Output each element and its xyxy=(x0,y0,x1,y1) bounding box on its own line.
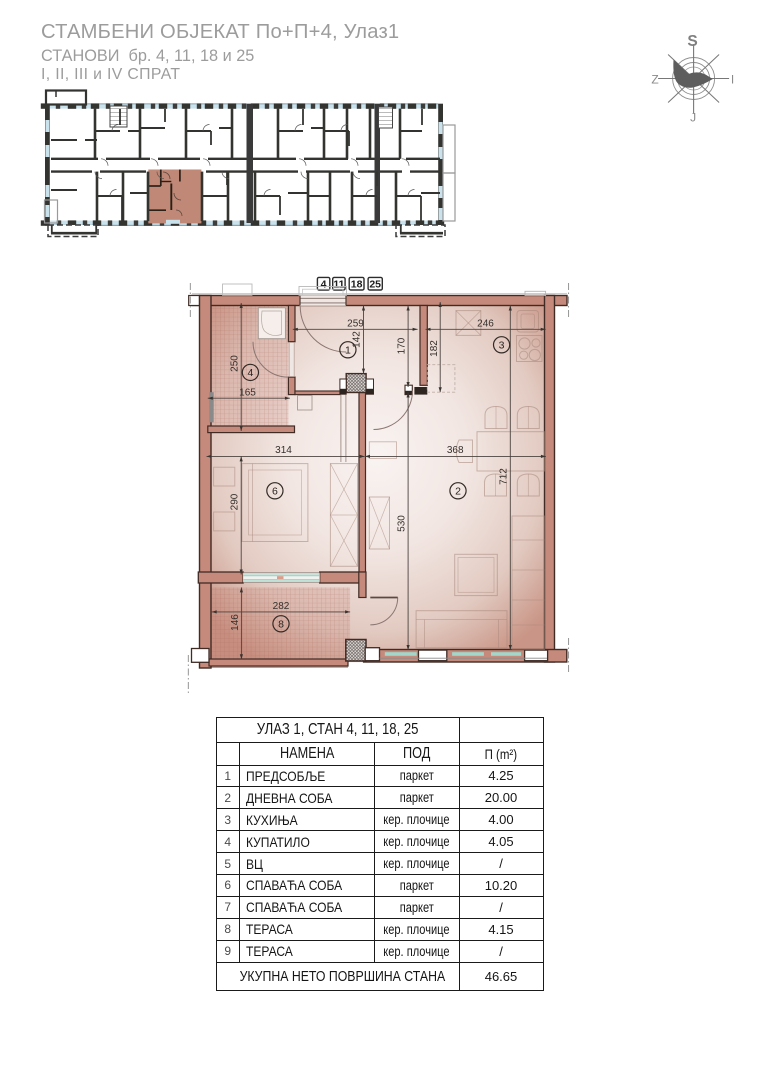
svg-text:1: 1 xyxy=(345,345,351,357)
svg-text:4: 4 xyxy=(247,367,253,379)
svg-text:2: 2 xyxy=(455,486,461,498)
svg-text:J: J xyxy=(690,111,696,125)
svg-text:170: 170 xyxy=(397,337,408,354)
svg-text:530: 530 xyxy=(397,515,408,532)
svg-text:6: 6 xyxy=(272,486,278,498)
svg-text:146: 146 xyxy=(230,614,241,631)
svg-text:368: 368 xyxy=(447,445,464,456)
svg-text:314: 314 xyxy=(275,445,292,456)
svg-text:18: 18 xyxy=(351,278,363,290)
svg-text:Z: Z xyxy=(651,73,658,87)
svg-text:290: 290 xyxy=(230,493,241,510)
svg-text:4: 4 xyxy=(321,278,327,290)
svg-text:282: 282 xyxy=(273,601,290,612)
svg-text:259: 259 xyxy=(347,318,364,329)
svg-text:712: 712 xyxy=(498,468,509,485)
svg-text:3: 3 xyxy=(499,340,505,352)
svg-text:8: 8 xyxy=(278,619,284,631)
svg-text:250: 250 xyxy=(230,355,241,372)
svg-text:165: 165 xyxy=(239,388,256,399)
svg-text:142: 142 xyxy=(352,331,363,348)
svg-text:11: 11 xyxy=(333,278,344,290)
svg-text:25: 25 xyxy=(369,278,381,290)
svg-text:182: 182 xyxy=(429,340,440,357)
svg-text:S: S xyxy=(687,33,697,50)
svg-text:I: I xyxy=(731,73,734,87)
svg-text:246: 246 xyxy=(477,318,494,329)
